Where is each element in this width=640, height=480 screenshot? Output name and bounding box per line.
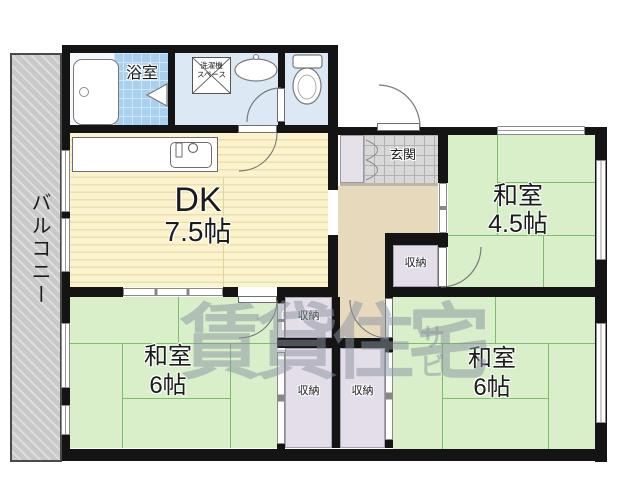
fixtures-overlay <box>0 0 640 480</box>
closet-se-label: 収納 <box>340 386 385 400</box>
balcony-label: バルコニー <box>16 192 54 342</box>
dk-sw-door-arc-icon <box>239 300 277 338</box>
room-se-size-label: 6帖 <box>427 375 557 403</box>
washbasin-icon <box>235 59 277 81</box>
toilet-door-arc-icon <box>247 88 281 122</box>
entrance-door-arc-icon <box>379 85 420 127</box>
laundry-label: 洗濯機 スペース <box>192 62 231 88</box>
toilet-tank-icon <box>293 55 322 68</box>
closet-mid-label: 収納 <box>285 311 332 325</box>
kitchen-faucet-icon <box>189 144 198 153</box>
closet-ne-label: 収納 <box>393 258 438 272</box>
kitchen-tap-icon <box>176 143 182 157</box>
closet-ne-door-arc-icon <box>441 247 481 287</box>
bath-label: 浴室 <box>112 66 172 88</box>
closet-sw-label: 収納 <box>285 386 332 400</box>
room-sw-label: 和室 <box>103 344 233 372</box>
room-ne-size-label: 4.5帖 <box>448 211 588 239</box>
laundry-label-line2: スペース <box>192 71 231 80</box>
room-ne-label: 和室 <box>453 183 583 211</box>
entrance-label: 玄関 <box>373 148 433 166</box>
washbasin-tap-icon <box>254 55 259 60</box>
hall-se-door-arc-icon <box>350 300 388 338</box>
washroom-dk-door-arc-icon <box>239 133 277 171</box>
room-se-label: 和室 <box>427 346 557 374</box>
room-sw-size-label: 6帖 <box>103 373 233 401</box>
floorplan-canvas: バルコニー 浴室 洗濯機 スペース 玄関 DK 7.5帖 和室 4.5帖 和室 … <box>0 0 640 480</box>
dk-size-label: 7.5帖 <box>128 217 268 251</box>
